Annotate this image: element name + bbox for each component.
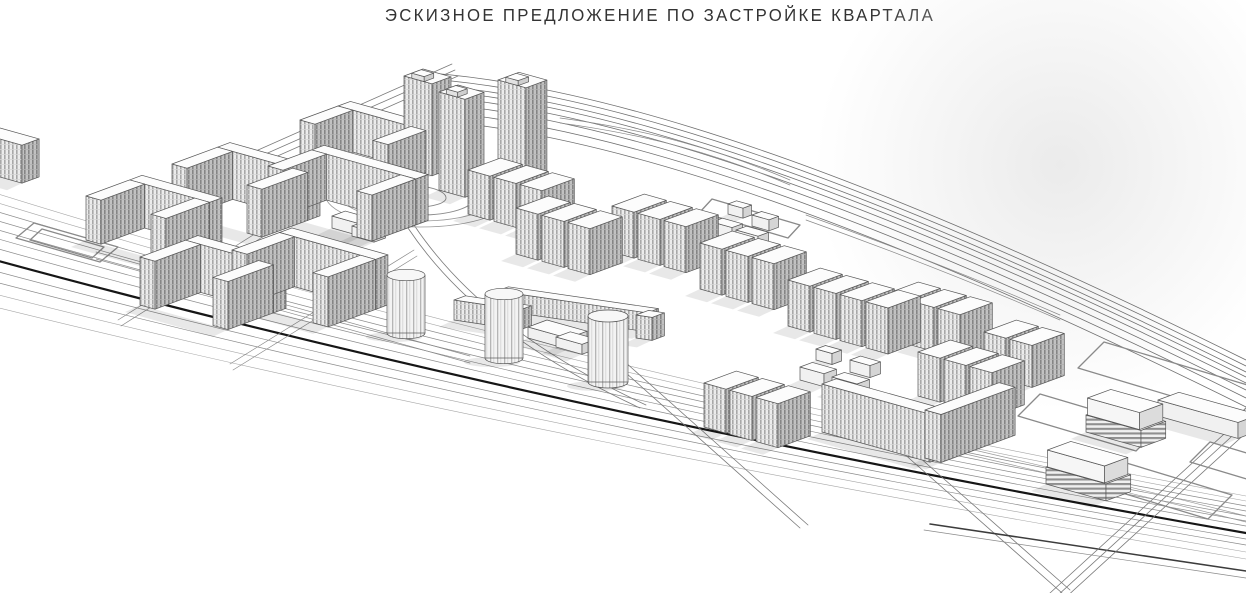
cross-street <box>902 452 1062 593</box>
apartment-row <box>568 211 622 275</box>
apartment-row <box>866 290 920 354</box>
school-wing <box>636 310 664 340</box>
perimeter-block <box>140 240 201 309</box>
apartment-row <box>756 386 810 448</box>
vacant-parcel <box>1190 442 1246 483</box>
drawing-sheet: ЭСКИЗНОЕ ПРЕДЛОЖЕНИЕ ПО ЗАСТРОЙКЕ КВАРТА… <box>0 0 1246 593</box>
edge-apartment-slab <box>0 128 39 184</box>
perimeter-block <box>86 180 145 244</box>
masterplan-drawing <box>0 0 1246 593</box>
